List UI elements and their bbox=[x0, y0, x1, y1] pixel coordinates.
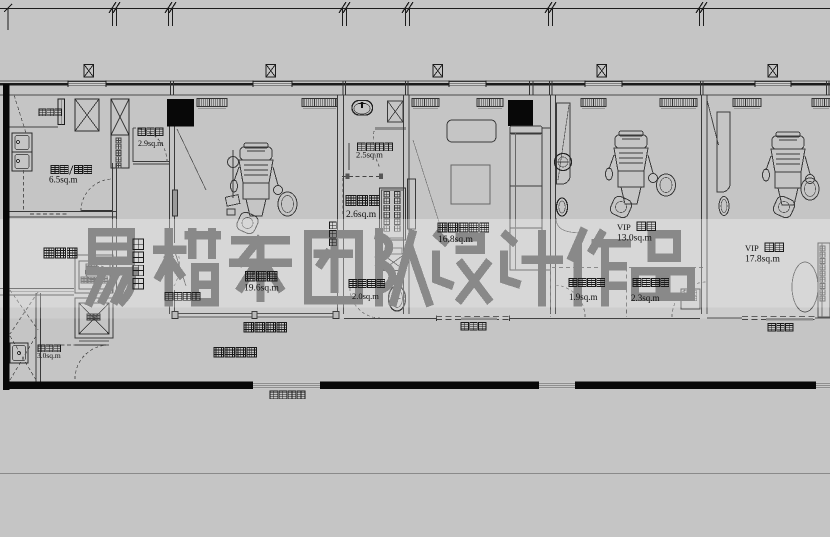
svg-text:VIP: VIP bbox=[745, 243, 759, 253]
svg-text:2.9sq.m: 2.9sq.m bbox=[138, 139, 164, 148]
svg-text:2.6sq.m: 2.6sq.m bbox=[346, 210, 377, 220]
svg-text:VIP: VIP bbox=[617, 222, 631, 232]
svg-text:13.0sq.m: 13.0sq.m bbox=[617, 234, 652, 244]
svg-text:2.3sq.m: 2.3sq.m bbox=[631, 293, 660, 303]
svg-text:1.9sq.m: 1.9sq.m bbox=[569, 292, 598, 302]
svg-text:17.8sq.m: 17.8sq.m bbox=[745, 255, 780, 265]
svg-text:2.5sq.m: 2.5sq.m bbox=[356, 150, 383, 160]
svg-text:19.6sq.m: 19.6sq.m bbox=[244, 284, 279, 294]
svg-text:6.5sq.m: 6.5sq.m bbox=[49, 175, 78, 185]
svg-text:2.0sq.m: 2.0sq.m bbox=[352, 291, 379, 301]
svg-text:16.8sq.m: 16.8sq.m bbox=[438, 235, 473, 245]
svg-text:3.0sq.m: 3.0sq.m bbox=[37, 351, 61, 360]
